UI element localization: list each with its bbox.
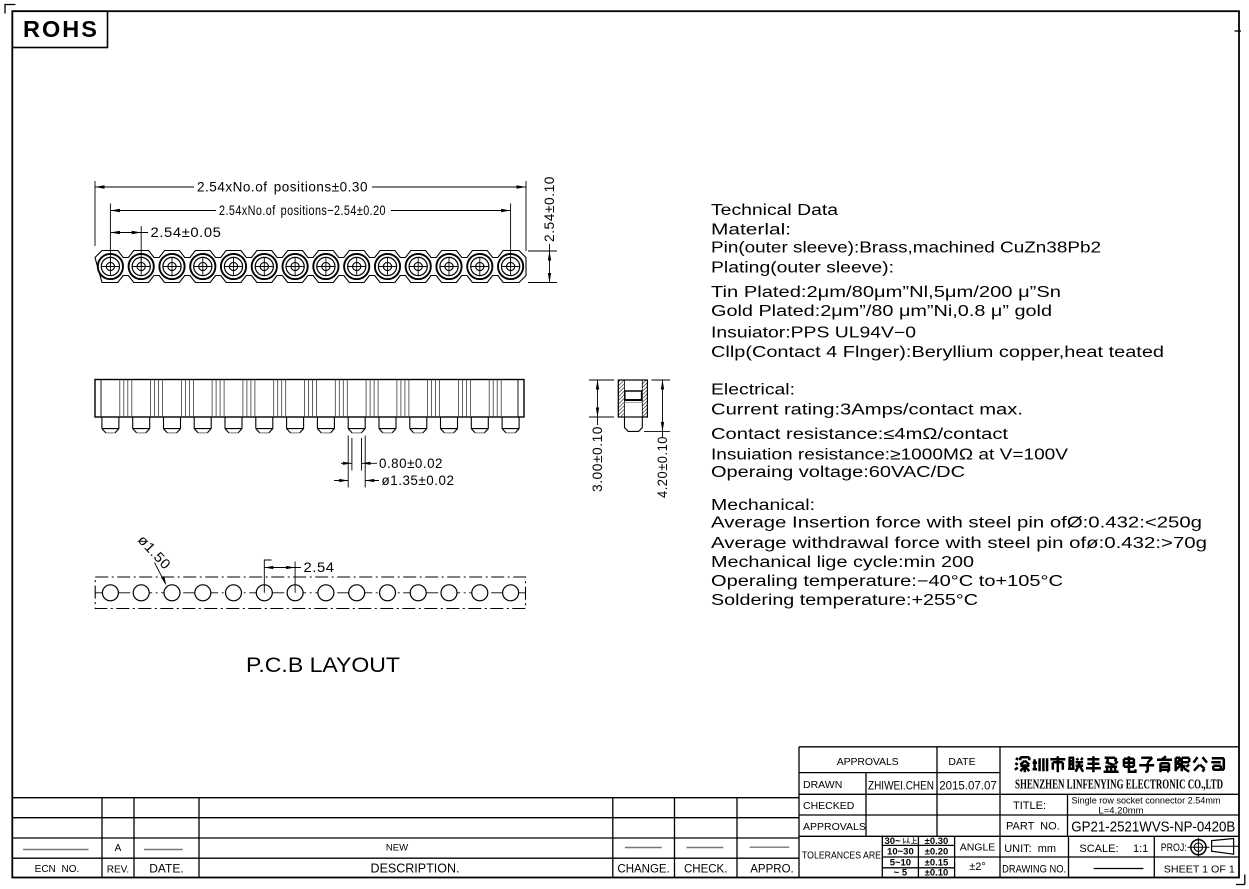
svg-text:TITLE:: TITLE: (1013, 800, 1046, 812)
svg-text:DATE: DATE (948, 756, 975, 768)
svg-text:2.54xNo.of positions±0.30: 2.54xNo.of positions±0.30 (197, 179, 368, 195)
svg-text:Mechanical:: Mechanical: (711, 497, 815, 514)
svg-text:P.C.B LAYOUT: P.C.B LAYOUT (246, 654, 400, 677)
svg-text:DATE.: DATE. (149, 862, 183, 876)
svg-text:DRAWN: DRAWN (803, 779, 842, 791)
svg-text:APPROVALS: APPROVALS (837, 756, 899, 768)
svg-text:SCALE:: SCALE: (1079, 843, 1118, 855)
svg-text:ZHIWEI.CHEN: ZHIWEI.CHEN (868, 781, 934, 793)
svg-text:UNIT: mm: UNIT: mm (1004, 843, 1056, 855)
svg-text:30~: 30~ (885, 836, 902, 847)
svg-text:Cllp(Contact 4 Flnger):Berylli: Cllp(Contact 4 Flnger):Beryllium copper,… (711, 344, 1164, 361)
svg-text:ø1.35±0.02: ø1.35±0.02 (382, 472, 455, 488)
svg-text:Materlal:: Materlal: (711, 222, 791, 239)
svg-text:±0.10: ±0.10 (925, 868, 949, 879)
svg-text:Soldering temperature:+255°C: Soldering temperature:+255°C (711, 592, 978, 609)
svg-text:Contact resistance:≤4mΩ/contac: Contact resistance:≤4mΩ/contact (711, 426, 1009, 443)
svg-text:0.80±0.02: 0.80±0.02 (379, 455, 443, 471)
svg-text:4.20±0.10: 4.20±0.10 (654, 436, 670, 498)
svg-text:GP21-2521WVS-NP-0420B: GP21-2521WVS-NP-0420B (1071, 819, 1235, 836)
svg-text:DESCRIPTION.: DESCRIPTION. (371, 862, 460, 876)
svg-text:DRAWING NO.: DRAWING NO. (1002, 864, 1066, 876)
svg-text:PROJ:: PROJ: (1161, 842, 1187, 854)
svg-text:2.54±0.05: 2.54±0.05 (151, 224, 222, 240)
svg-text:3.00±0.10: 3.00±0.10 (589, 426, 605, 492)
svg-text:10~30: 10~30 (887, 847, 914, 858)
svg-text:2.54xNo.of positions−2.54±0.2: 2.54xNo.of positions−2.54±0.20 (219, 202, 386, 218)
svg-text:APPRO.: APPRO. (750, 863, 793, 875)
svg-text:Operaling temperature:−40°C t: Operaling temperature:−40°C to+105°C (711, 573, 1063, 590)
svg-text:PART NO.: PART NO. (1006, 821, 1060, 833)
svg-text:Single row socket connector 2.: Single row socket connector 2.54mm (1072, 796, 1221, 807)
svg-text:Electrical:: Electrical: (711, 381, 795, 398)
svg-text:Technical Data: Technical Data (711, 202, 838, 219)
svg-text:ANGLE: ANGLE (960, 841, 996, 853)
svg-text:±0.30: ±0.30 (925, 836, 949, 847)
svg-text:L=4.20mm: L=4.20mm (1098, 806, 1143, 817)
svg-text:SHENZHEN LINFENYING ELECTRONIC: SHENZHEN LINFENYING ELECTRONIC CO.,LTD (1015, 777, 1223, 792)
svg-text:SHEET 1 OF 1: SHEET 1 OF 1 (1164, 864, 1235, 876)
svg-text:ECN NO.: ECN NO. (35, 864, 80, 875)
svg-text:Average withdrawal force with: Average withdrawal force with steel pin … (711, 535, 1207, 552)
svg-text:Insuiator:PPS UL94V−0: Insuiator:PPS UL94V−0 (711, 325, 916, 342)
svg-text:Average Insertion force with s: Average Insertion force with steel pin o… (711, 515, 1202, 532)
svg-text:Gold Plated:2μm”/80 μm”Ni,0.8: Gold Plated:2μm”/80 μm”Ni,0.8 μ” gold (711, 303, 1052, 320)
svg-text:2015.07.07: 2015.07.07 (939, 781, 997, 793)
svg-text:TOLERANCES ARE: TOLERANCES ARE (802, 851, 881, 862)
svg-text:CHECKED: CHECKED (803, 800, 855, 812)
svg-text:±2°: ±2° (969, 861, 986, 873)
svg-text:REV.: REV. (107, 864, 129, 875)
svg-text:CHANGE.: CHANGE. (617, 864, 669, 876)
svg-text:A: A (115, 843, 122, 854)
svg-text:±0.20: ±0.20 (925, 847, 949, 858)
svg-text:Tin Plated:2μm/80μm”Nl,5μm/200: Tin Plated:2μm/80μm”Nl,5μm/200 μ”Sn (711, 284, 1061, 301)
svg-text:Pin(outer sleeve):Brass,machin: Pin(outer sleeve):Brass,machined CuZn38P… (711, 240, 1101, 257)
svg-text:Insuiation resistance:≥1000MΩ: Insuiation resistance:≥1000MΩ at V=100V (711, 446, 1069, 463)
svg-text:Mechanical lige cycle:min 200: Mechanical lige cycle:min 200 (711, 554, 974, 571)
svg-text:Operaing voltage:60VAC/DC: Operaing voltage:60VAC/DC (711, 464, 965, 481)
svg-text:Current rating:3Amps/contact m: Current rating:3Amps/contact max. (711, 402, 1023, 419)
svg-text:APPROVALS: APPROVALS (803, 821, 866, 833)
svg-text:~ 5: ~ 5 (894, 868, 908, 879)
svg-text:ROHS: ROHS (23, 16, 99, 42)
svg-text:Plating(outer sleeve):: Plating(outer sleeve): (711, 260, 894, 277)
svg-text:2.54: 2.54 (304, 559, 335, 575)
svg-text:2.54±0.10: 2.54±0.10 (541, 176, 557, 242)
svg-text:CHECK.: CHECK. (684, 864, 727, 876)
svg-text:1:1: 1:1 (1133, 843, 1148, 855)
svg-text:NEW: NEW (386, 843, 408, 854)
